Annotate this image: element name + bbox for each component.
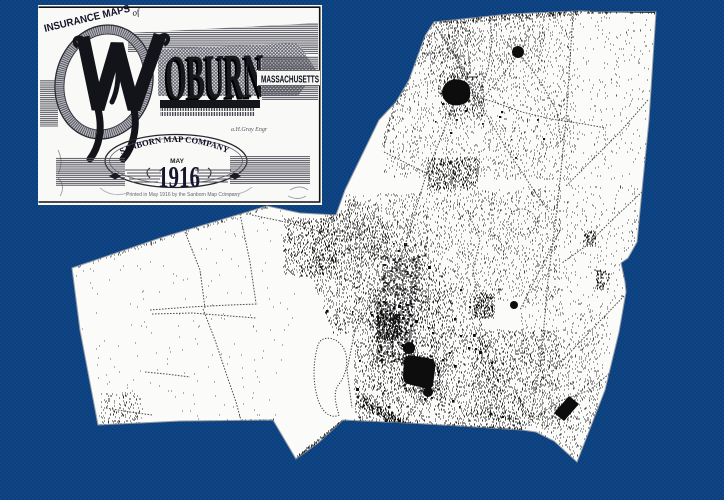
svg-text:MASSACHUSETTS: MASSACHUSETTS (261, 75, 319, 86)
svg-text:a.H.Gray Engr: a.H.Gray Engr (231, 127, 268, 133)
svg-text:1916: 1916 (158, 159, 200, 194)
svg-text:Printed in May 1916 by the San: Printed in May 1916 by the Sanborn Map C… (126, 192, 240, 198)
